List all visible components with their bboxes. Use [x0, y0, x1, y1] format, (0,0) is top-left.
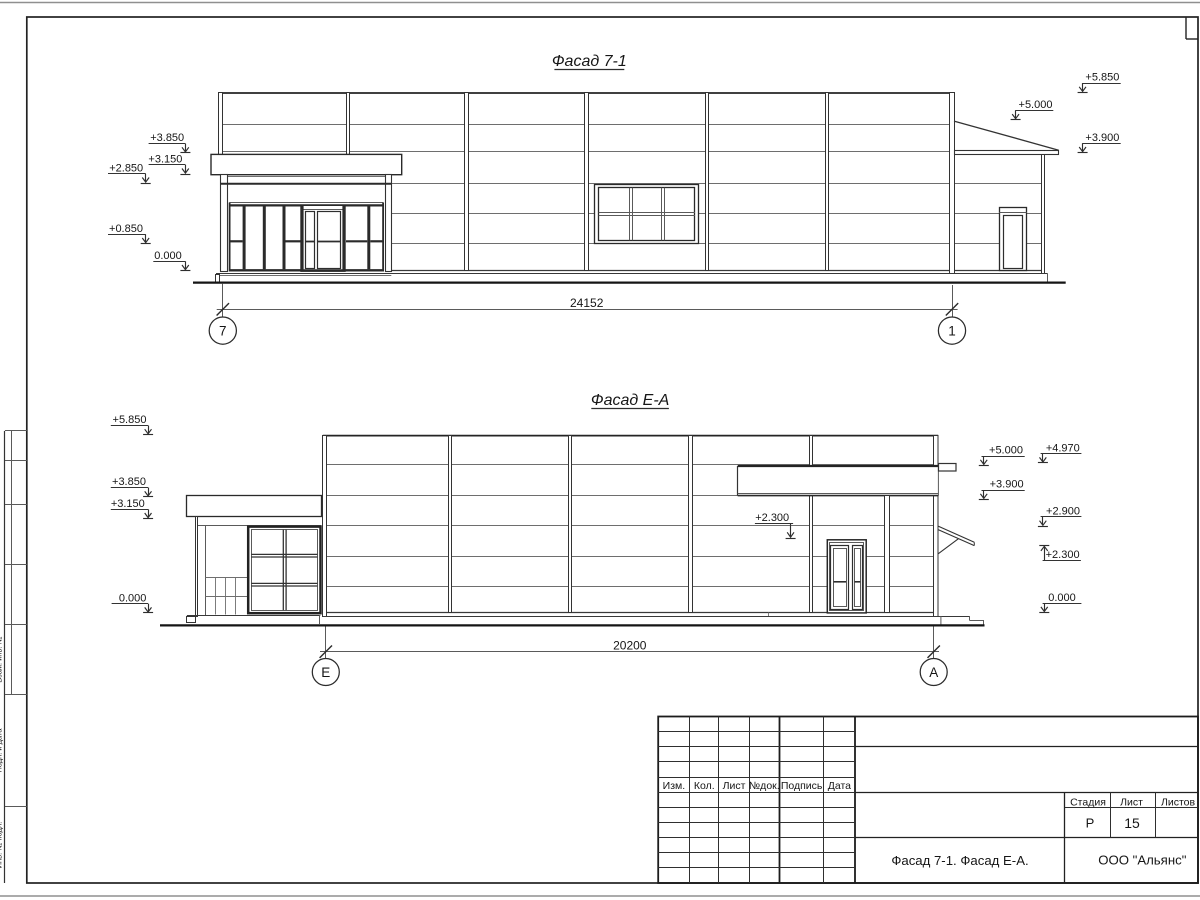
svg-text:Листов: Листов: [1161, 796, 1196, 808]
svg-text:Е: Е: [321, 665, 330, 680]
svg-text:+2.300: +2.300: [755, 512, 789, 524]
svg-text:+3.900: +3.900: [990, 479, 1024, 491]
svg-text:15: 15: [1124, 815, 1140, 831]
svg-text:+4.970: +4.970: [1046, 442, 1080, 454]
svg-text:7: 7: [219, 323, 227, 338]
svg-text:+3.150: +3.150: [111, 498, 145, 510]
svg-text:+0.850: +0.850: [109, 223, 143, 235]
svg-text:+5.000: +5.000: [1019, 99, 1053, 111]
svg-text:0.000: 0.000: [119, 592, 147, 604]
svg-text:+5.850: +5.850: [113, 414, 147, 426]
svg-text:+2.300: +2.300: [1046, 549, 1080, 561]
svg-text:Лист: Лист: [1120, 796, 1143, 808]
svg-text:Дата: Дата: [828, 780, 851, 792]
svg-text:Изм.: Изм.: [663, 780, 686, 792]
svg-text:+2.900: +2.900: [1046, 506, 1080, 518]
svg-text:Подпись: Подпись: [781, 780, 823, 792]
svg-text:Лист: Лист: [723, 780, 746, 792]
svg-text:Фасад 7-1. Фасад Е-А.: Фасад 7-1. Фасад Е-А.: [891, 853, 1028, 868]
svg-text:А: А: [929, 665, 938, 680]
svg-text:+3.900: +3.900: [1085, 132, 1119, 144]
svg-text:Фасад Е-А: Фасад Е-А: [591, 392, 669, 409]
svg-text:Р: Р: [1086, 815, 1095, 830]
svg-text:Кол.: Кол.: [694, 780, 715, 792]
svg-text:№док.: №док.: [749, 780, 780, 792]
svg-text:Инв. № подл.: Инв. № подл.: [0, 822, 3, 869]
svg-text:Взам. инв. №: Взам. инв. №: [0, 636, 3, 682]
svg-text:24152: 24152: [570, 296, 604, 310]
svg-text:Подп. и дата: Подп. и дата: [0, 728, 3, 773]
svg-text:1: 1: [948, 323, 956, 338]
svg-text:0.000: 0.000: [1048, 592, 1076, 604]
svg-text:Фасад 7-1: Фасад 7-1: [552, 53, 627, 70]
svg-text:+2.850: +2.850: [109, 162, 143, 174]
svg-text:+3.150: +3.150: [148, 153, 182, 165]
svg-text:Стадия: Стадия: [1070, 796, 1106, 808]
svg-text:0.000: 0.000: [154, 250, 182, 262]
svg-text:+5.000: +5.000: [989, 445, 1023, 457]
svg-text:20200: 20200: [613, 638, 647, 652]
svg-text:+3.850: +3.850: [112, 476, 146, 488]
svg-text:ООО "Альянс": ООО "Альянс": [1098, 853, 1186, 868]
svg-text:+5.850: +5.850: [1085, 72, 1119, 84]
svg-text:+3.850: +3.850: [150, 132, 184, 144]
